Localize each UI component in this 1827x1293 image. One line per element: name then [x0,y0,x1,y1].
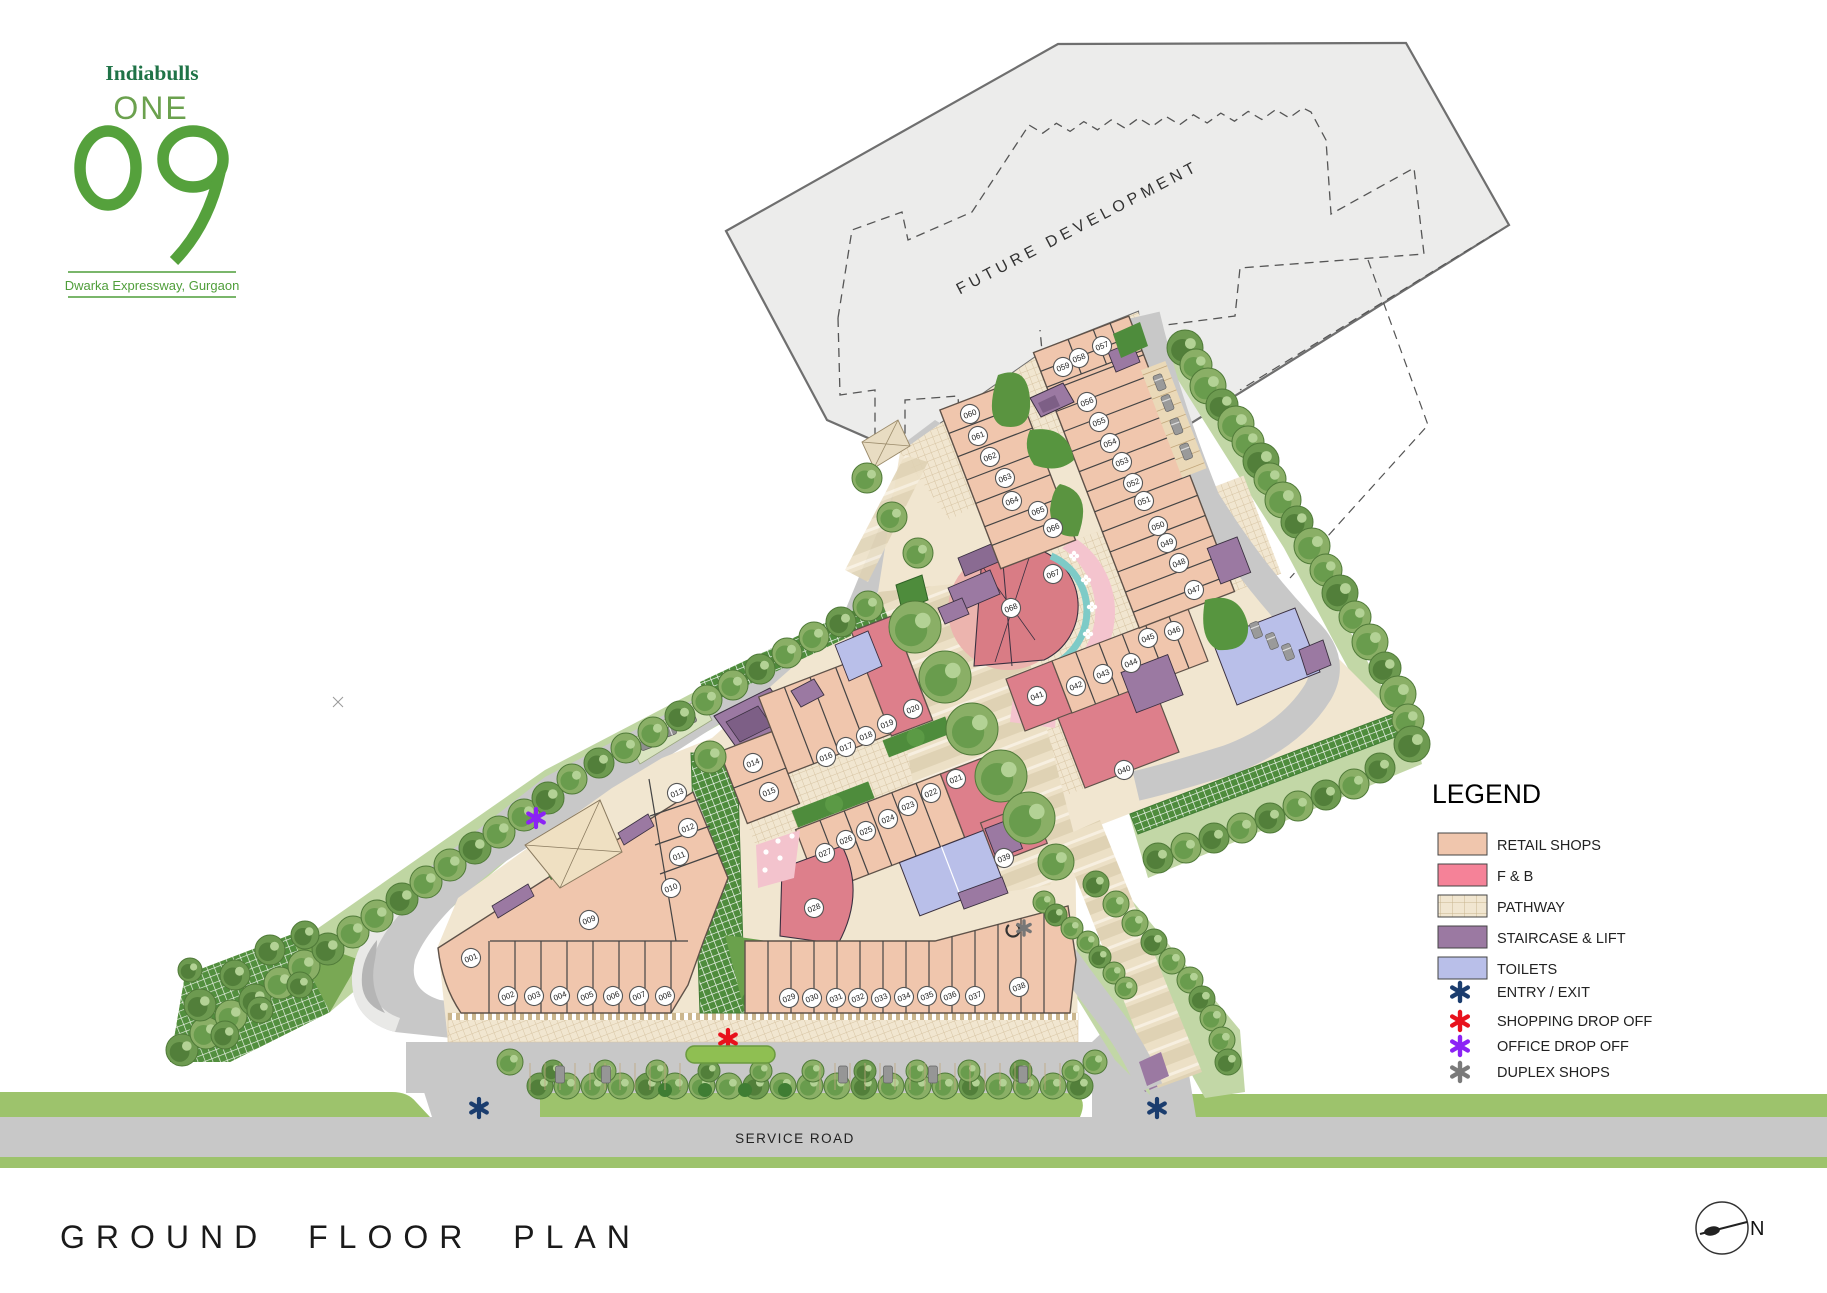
svg-text:PATHWAY: PATHWAY [1497,900,1565,916]
svg-text:N: N [1750,1218,1764,1240]
svg-text:ONE: ONE [113,90,188,126]
svg-text:GROUND FLOOR PLAN: GROUND FLOOR PLAN [60,1219,641,1255]
svg-text:F & B: F & B [1497,869,1533,885]
svg-text:STAIRCASE & LIFT: STAIRCASE & LIFT [1497,931,1626,947]
svg-text:OFFICE DROP OFF: OFFICE DROP OFF [1497,1039,1629,1055]
svg-text:SERVICE ROAD: SERVICE ROAD [735,1131,855,1146]
svg-text:Dwarka Expressway, Gurgaon: Dwarka Expressway, Gurgaon [65,278,240,293]
svg-text:SHOPPING DROP OFF: SHOPPING DROP OFF [1497,1014,1652,1030]
svg-text:Indiabulls: Indiabulls [105,61,198,85]
svg-text:TOILETS: TOILETS [1497,962,1557,978]
svg-text:ENTRY / EXIT: ENTRY / EXIT [1497,985,1590,1001]
svg-text:LEGEND: LEGEND [1432,779,1541,809]
svg-text:DUPLEX SHOPS: DUPLEX SHOPS [1497,1065,1610,1081]
svg-text:RETAIL SHOPS: RETAIL SHOPS [1497,838,1601,854]
